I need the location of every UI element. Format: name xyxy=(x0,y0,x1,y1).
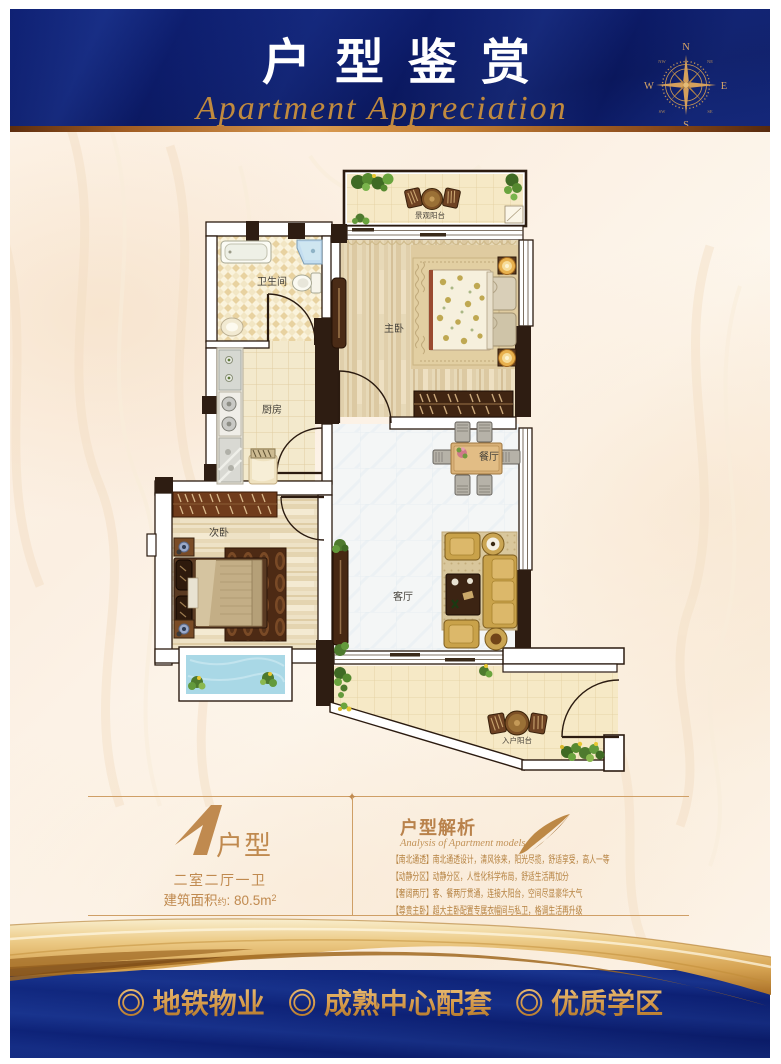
svg-text:卫生间: 卫生间 xyxy=(257,275,287,288)
svg-text:主卧: 主卧 xyxy=(384,322,404,335)
svg-text:景观阳台: 景观阳台 xyxy=(415,210,445,220)
svg-text:厨房: 厨房 xyxy=(262,403,282,416)
svg-text:次卧: 次卧 xyxy=(209,526,229,539)
svg-text:餐厅: 餐厅 xyxy=(479,450,499,463)
svg-text:入户阳台: 入户阳台 xyxy=(502,735,532,745)
svg-text:客厅: 客厅 xyxy=(393,590,413,603)
